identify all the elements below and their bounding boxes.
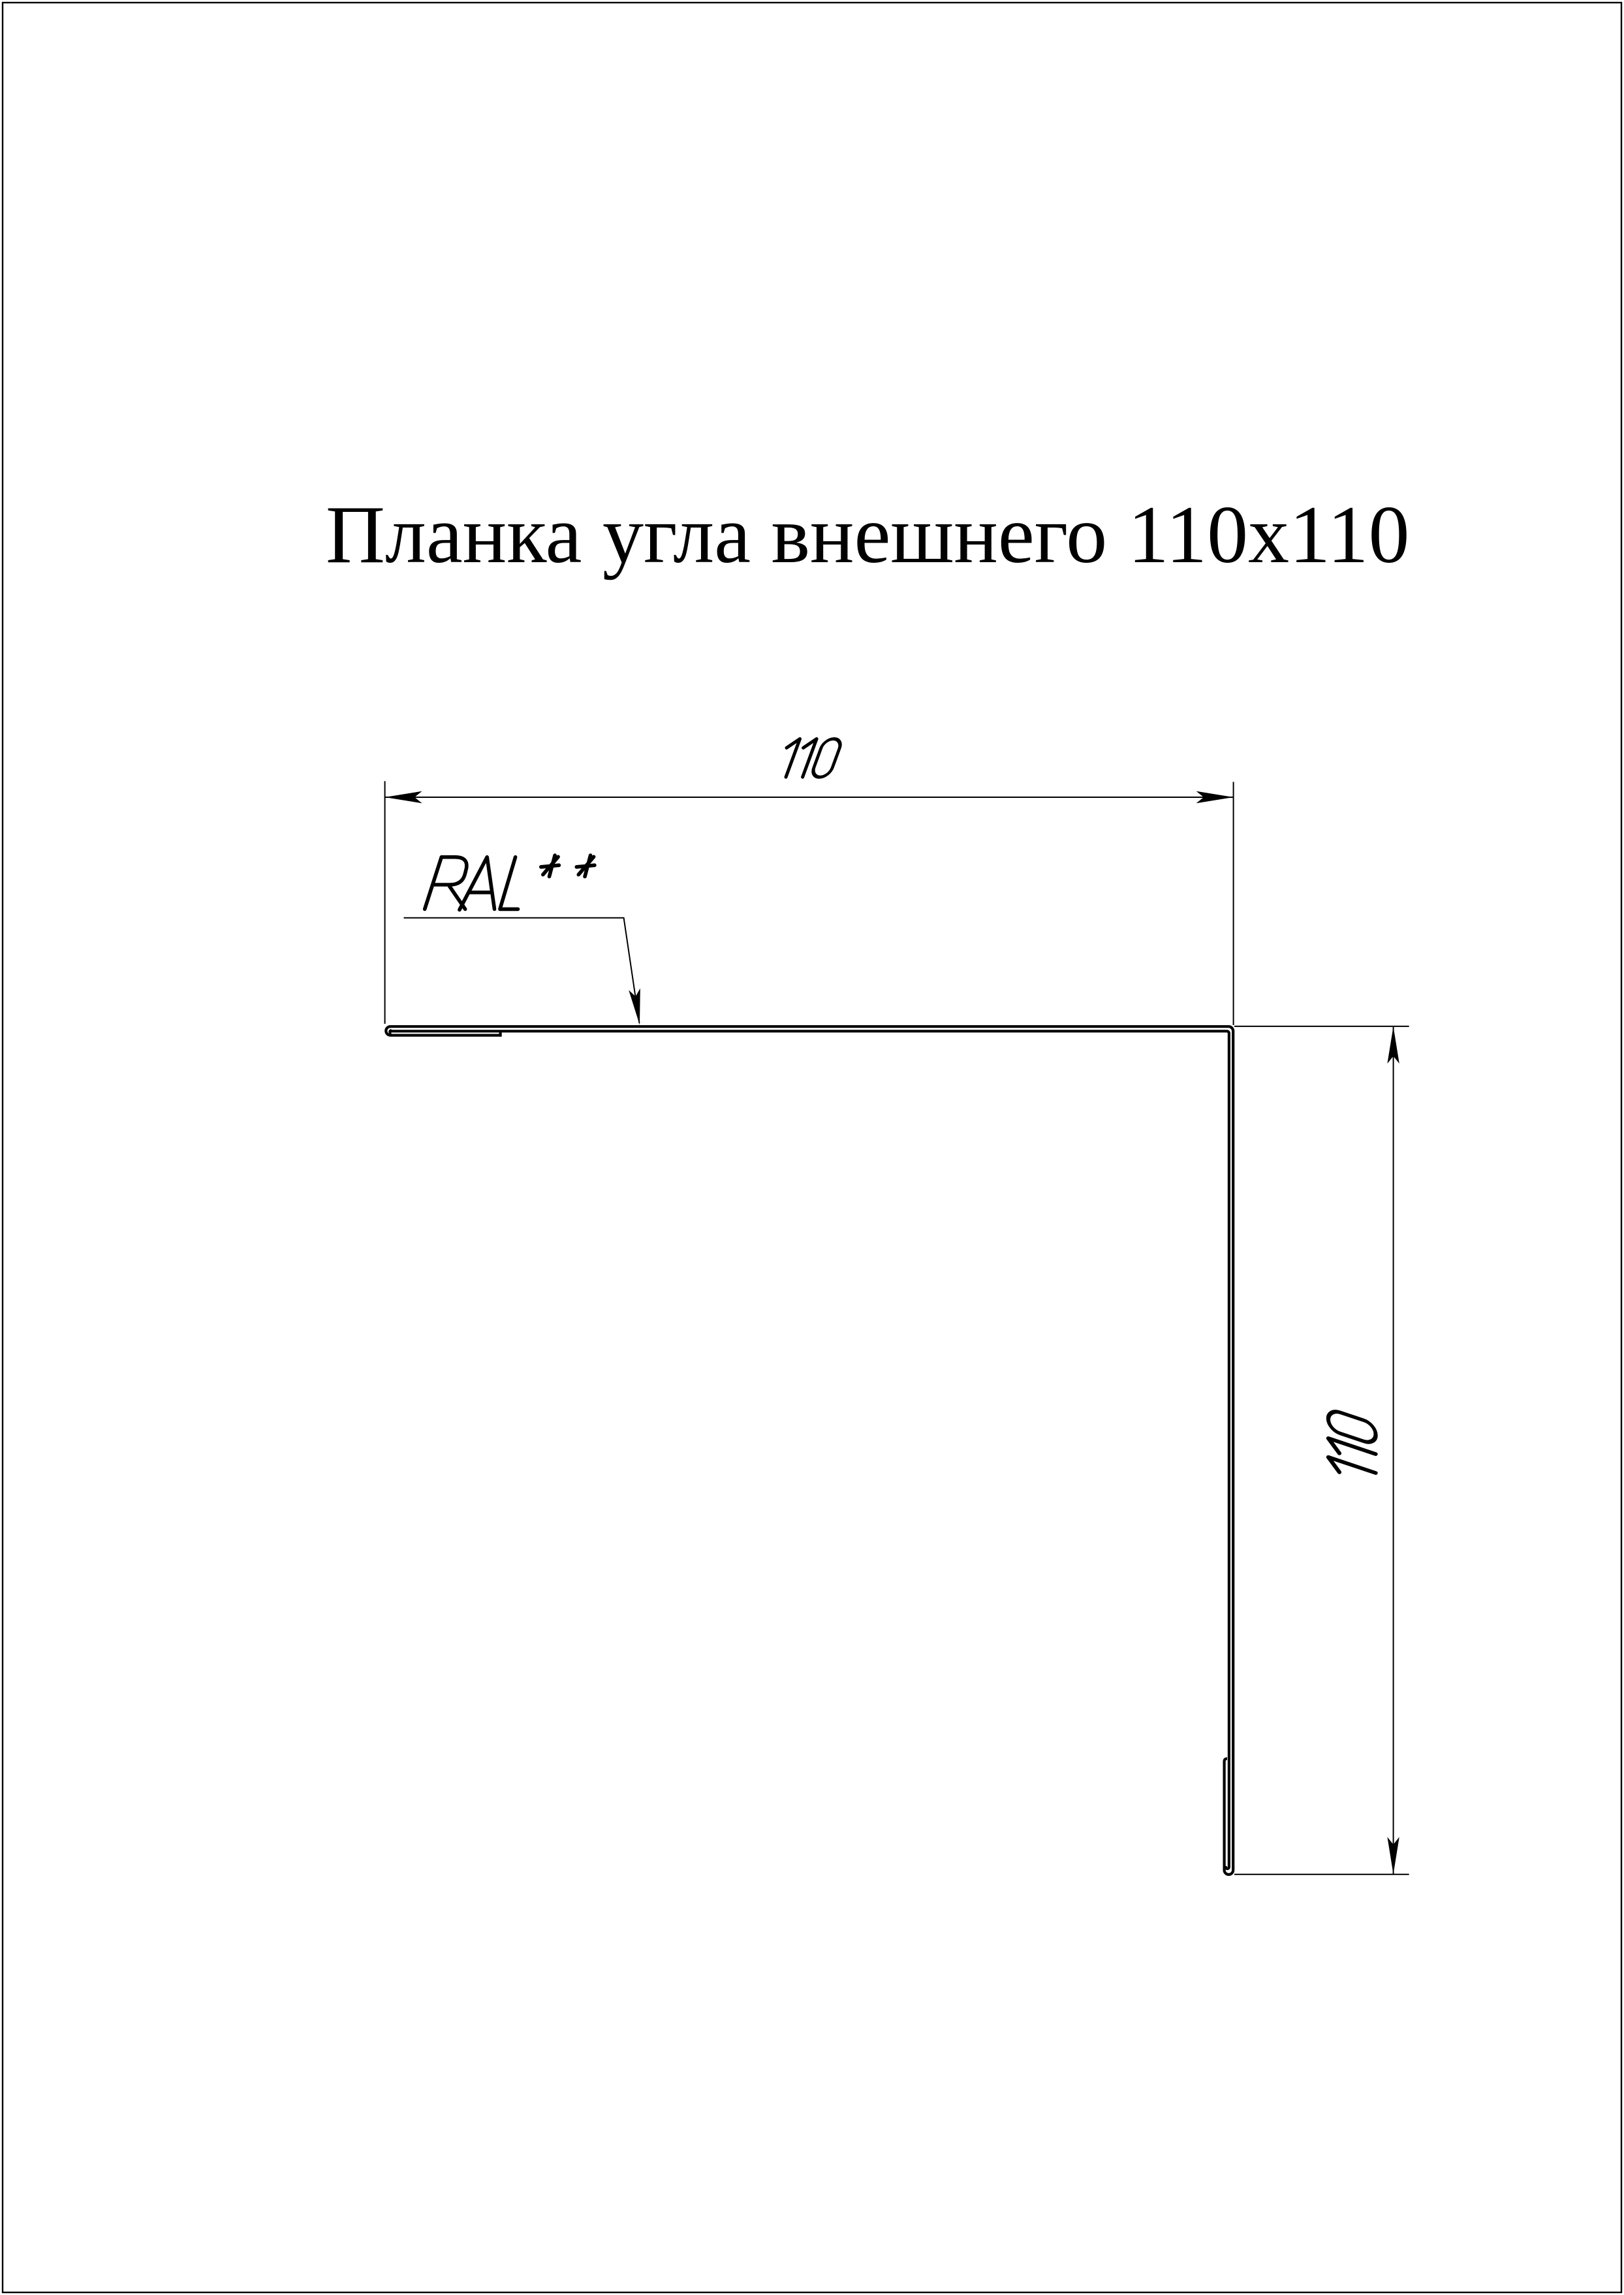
svg-text:Планка угла внешнего 110х110: Планка угла внешнего 110х110 (326, 490, 1409, 580)
